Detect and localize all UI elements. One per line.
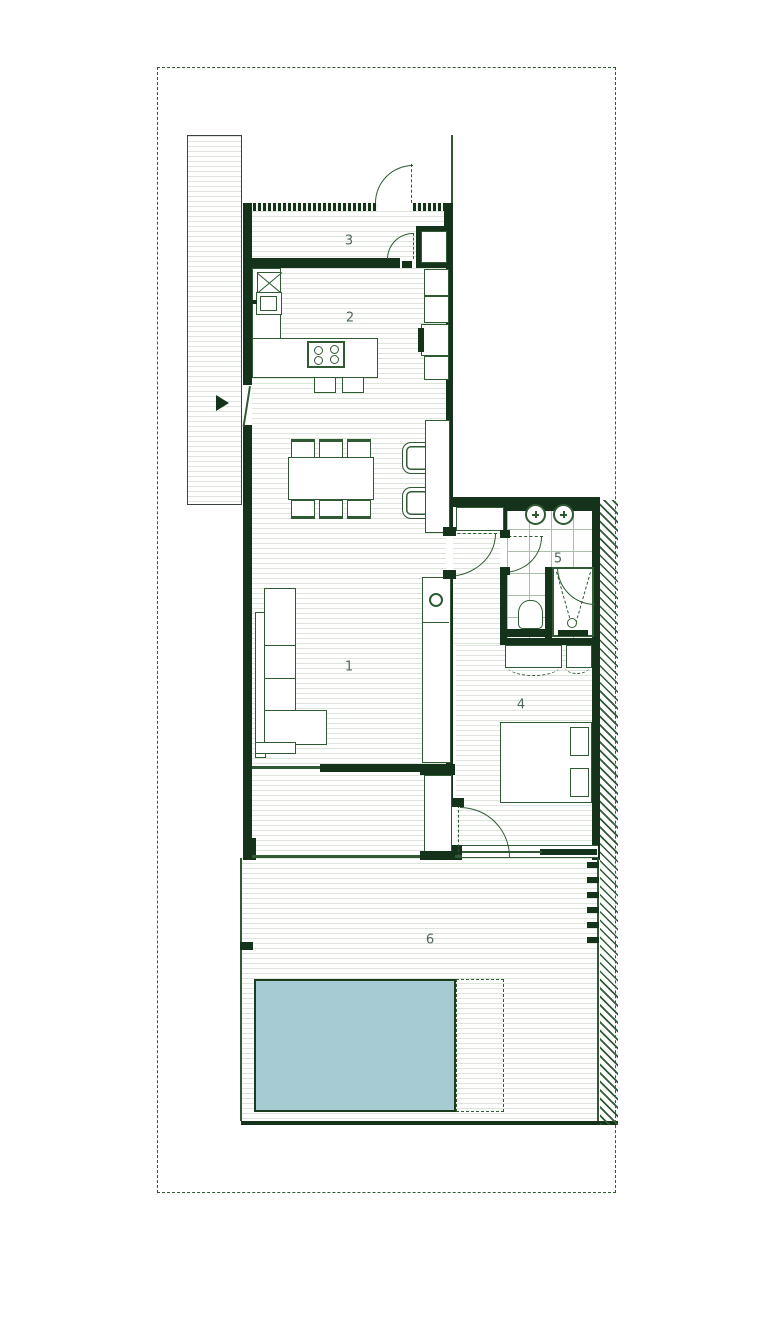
door-hinge-block <box>500 567 510 575</box>
column-junction-top <box>420 764 455 775</box>
west-wall-lower <box>243 425 252 838</box>
sink-tap-icon <box>251 300 257 304</box>
entry-closet <box>421 231 447 263</box>
dining-chair <box>291 439 315 458</box>
door-hinge-block <box>443 570 456 579</box>
wardrobe <box>505 645 562 668</box>
dining-chair <box>291 500 315 519</box>
column-junction-bottom <box>420 851 455 860</box>
wall-desk <box>425 420 450 533</box>
fence-post <box>587 877 599 883</box>
pool-deck-dashed <box>456 979 504 1112</box>
burner-icon <box>314 356 323 365</box>
dining-chair <box>347 439 371 458</box>
terrace-south-edge <box>241 1121 618 1125</box>
pillow <box>570 768 589 797</box>
west-wall-upper <box>243 203 252 385</box>
dining-chair <box>319 500 343 519</box>
pillow <box>570 727 589 756</box>
sofa-modules <box>264 588 296 712</box>
shower-channel-drain <box>558 630 588 636</box>
room-label-living: 1 <box>345 660 353 675</box>
fridge-cabinet <box>257 272 281 293</box>
sofa-corner-module <box>264 710 327 745</box>
terrace-post <box>240 942 253 950</box>
bar-stool <box>314 377 336 393</box>
entry-door-threshold <box>402 261 412 268</box>
front-wall-insulated-left <box>243 203 378 211</box>
room-label-bedroom: 4 <box>517 698 525 713</box>
tall-cabinet <box>424 356 449 380</box>
fireplace-column-lower <box>424 775 452 853</box>
basin-cross <box>532 514 539 516</box>
stove-icon <box>307 341 345 368</box>
far-east-wall <box>592 497 600 860</box>
toilet-icon <box>518 600 543 629</box>
fence-post <box>587 892 599 898</box>
bedroom-door-leaf <box>458 805 459 857</box>
pool <box>254 979 456 1112</box>
flue-circle-icon <box>429 593 443 607</box>
door-hinge-block <box>500 530 510 538</box>
dining-table <box>288 457 374 500</box>
tall-cabinet <box>424 296 449 323</box>
shower-drain-icon <box>567 618 577 628</box>
fence-post <box>587 862 599 868</box>
basin-cross <box>560 514 567 516</box>
column-divider <box>423 622 449 623</box>
burner-icon <box>330 345 339 354</box>
entry-door-leaf <box>413 233 414 259</box>
room-label-terrace: 6 <box>426 933 434 948</box>
washbasin-icon <box>525 504 546 525</box>
sofa-divider <box>265 678 295 679</box>
fence-post <box>587 922 599 928</box>
entrance-arrow-icon <box>216 395 229 411</box>
oven-handle <box>418 328 424 352</box>
shower-partition <box>545 567 552 638</box>
patio-floor <box>252 775 446 855</box>
neighbor-hatch-strip <box>600 500 618 1125</box>
burner-icon <box>314 346 323 355</box>
kitchen-sink-basin-icon <box>260 296 277 311</box>
door-hinge-block <box>452 798 464 807</box>
washbasin-icon <box>553 504 574 525</box>
room-label-kitchen: 2 <box>346 311 354 326</box>
room-label-entry: 3 <box>345 234 353 249</box>
entry-south-wall <box>252 258 400 268</box>
sofa-bench <box>255 742 296 754</box>
bath-south-wall <box>500 638 592 645</box>
fireplace-column <box>422 577 451 763</box>
wardrobe <box>566 645 592 668</box>
fence-post <box>587 937 599 943</box>
room-label-bathroom: 5 <box>554 552 562 567</box>
setback-line <box>451 135 453 203</box>
bedroom-window-frame-dark <box>540 849 597 855</box>
hall-closet <box>456 507 504 531</box>
dining-chair <box>319 439 343 458</box>
bar-stool <box>342 377 364 393</box>
driveway-strip <box>187 135 242 505</box>
burner-icon <box>330 355 339 364</box>
fence-post <box>587 907 599 913</box>
dining-chair <box>347 500 371 519</box>
floor-plan-canvas: 1 2 3 4 5 6 <box>0 0 768 1344</box>
closet-sliding-line <box>454 530 504 531</box>
vanity-counter <box>507 503 592 511</box>
terrace-west-edge <box>240 858 242 1121</box>
sofa-divider <box>265 645 295 646</box>
door-hinge-block <box>443 527 456 536</box>
toilet-base <box>505 629 550 637</box>
living-glazing-thick <box>320 764 430 772</box>
oven-cabinet <box>421 324 449 356</box>
tall-cabinet <box>424 269 449 296</box>
